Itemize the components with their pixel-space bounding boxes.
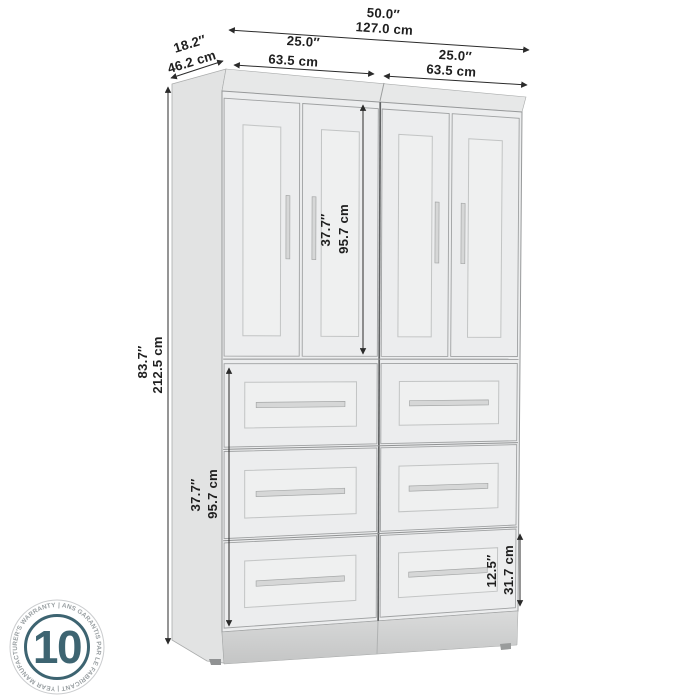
drawer-handle — [410, 400, 489, 406]
left-section-cm: 63.5 cm — [268, 51, 319, 69]
product-dimension-page: 50.0″ 127.0 cm 25.0″ 63.5 cm 25.0″ 63.5 … — [0, 0, 700, 700]
drawer-handle — [256, 401, 345, 407]
door-handle — [286, 196, 290, 259]
door-section-inches: 37.7″ — [318, 213, 333, 246]
warranty-badge: | ANS GARANTIS PAR LE FABRICANT | YEAR M… — [10, 600, 104, 694]
door-handle — [435, 202, 439, 263]
total-width-cm: 127.0 cm — [355, 19, 413, 38]
bottom-drawer-cm: 31.7 cm — [501, 545, 516, 595]
cabinet-foot-right — [500, 643, 511, 650]
door-handle — [312, 197, 316, 260]
cabinet-side-panel — [172, 69, 226, 663]
wardrobe-dimension-diagram: 50.0″ 127.0 cm 25.0″ 63.5 cm 25.0″ 63.5 … — [0, 0, 700, 700]
drawer-section-cm: 95.7 cm — [205, 469, 220, 519]
badge-number: 10 — [33, 621, 81, 673]
door-inset-panel — [398, 134, 432, 337]
door-inset-panel — [243, 125, 281, 336]
bottom-drawer-inches: 12.5″ — [484, 554, 499, 587]
depth-cm: 46.2 cm — [166, 47, 218, 76]
left-section-inches: 25.0″ — [286, 33, 320, 50]
right-section-cm: 63.5 cm — [426, 61, 477, 79]
drawer-section-inches: 37.7″ — [188, 478, 203, 511]
total-height-cm: 212.5 cm — [150, 336, 165, 393]
total-height-inches: 83.7″ — [135, 345, 150, 378]
door-section-cm: 95.7 cm — [336, 204, 351, 254]
door-handle — [461, 203, 465, 264]
wardrobe-render — [172, 69, 526, 665]
cabinet-foot-left — [209, 659, 221, 665]
door-inset-panel — [468, 139, 503, 338]
